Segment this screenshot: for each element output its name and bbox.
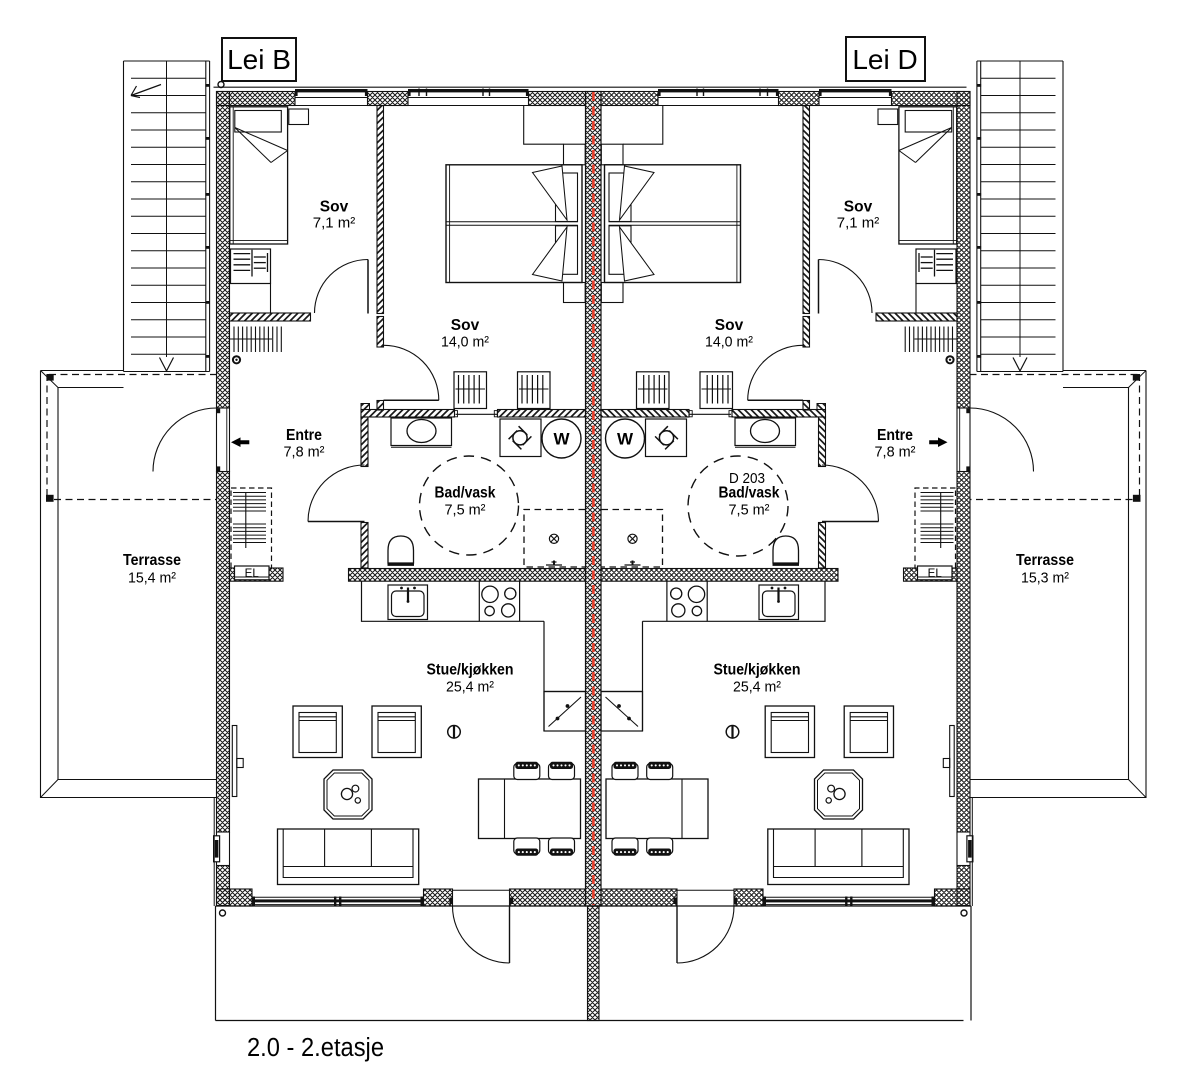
svg-text:EL: EL <box>928 568 943 580</box>
svg-text:Sov: Sov <box>451 317 480 334</box>
svg-text:Bad/vask: Bad/vask <box>435 485 496 502</box>
svg-text:EL: EL <box>245 568 260 580</box>
svg-text:Sov: Sov <box>844 199 873 216</box>
svg-text:15,4 m²: 15,4 m² <box>128 570 176 587</box>
svg-text:7,5 m²: 7,5 m² <box>729 502 770 519</box>
svg-text:7,1 m²: 7,1 m² <box>313 215 356 232</box>
svg-text:Entre: Entre <box>877 427 913 444</box>
svg-text:Terrasse: Terrasse <box>1016 552 1074 569</box>
svg-text:15,3 m²: 15,3 m² <box>1021 570 1069 587</box>
svg-text:Terrasse: Terrasse <box>123 552 181 569</box>
svg-text:Stue/kjøkken: Stue/kjøkken <box>714 662 801 679</box>
svg-text:7,8 m²: 7,8 m² <box>875 444 916 461</box>
svg-text:Lei B: Lei B <box>227 44 291 75</box>
svg-text:Entre: Entre <box>286 427 322 444</box>
svg-text:7,8 m²: 7,8 m² <box>284 444 325 461</box>
svg-text:7,1 m²: 7,1 m² <box>837 215 880 232</box>
svg-text:Bad/vask: Bad/vask <box>719 485 780 502</box>
svg-text:14,0 m²: 14,0 m² <box>705 334 753 351</box>
svg-text:Lei D: Lei D <box>852 44 917 75</box>
svg-text:7,5 m²: 7,5 m² <box>445 502 486 519</box>
svg-text:W: W <box>617 430 634 449</box>
svg-text:Sov: Sov <box>320 199 349 216</box>
svg-text:W: W <box>553 430 570 449</box>
svg-text:Sov: Sov <box>715 317 744 334</box>
svg-text:2.0 - 2.etasje: 2.0 - 2.etasje <box>247 1034 384 1062</box>
svg-text:Stue/kjøkken: Stue/kjøkken <box>427 662 514 679</box>
svg-text:25,4 m²: 25,4 m² <box>733 679 781 696</box>
svg-text:25,4 m²: 25,4 m² <box>446 679 494 696</box>
svg-text:14,0 m²: 14,0 m² <box>441 334 489 351</box>
